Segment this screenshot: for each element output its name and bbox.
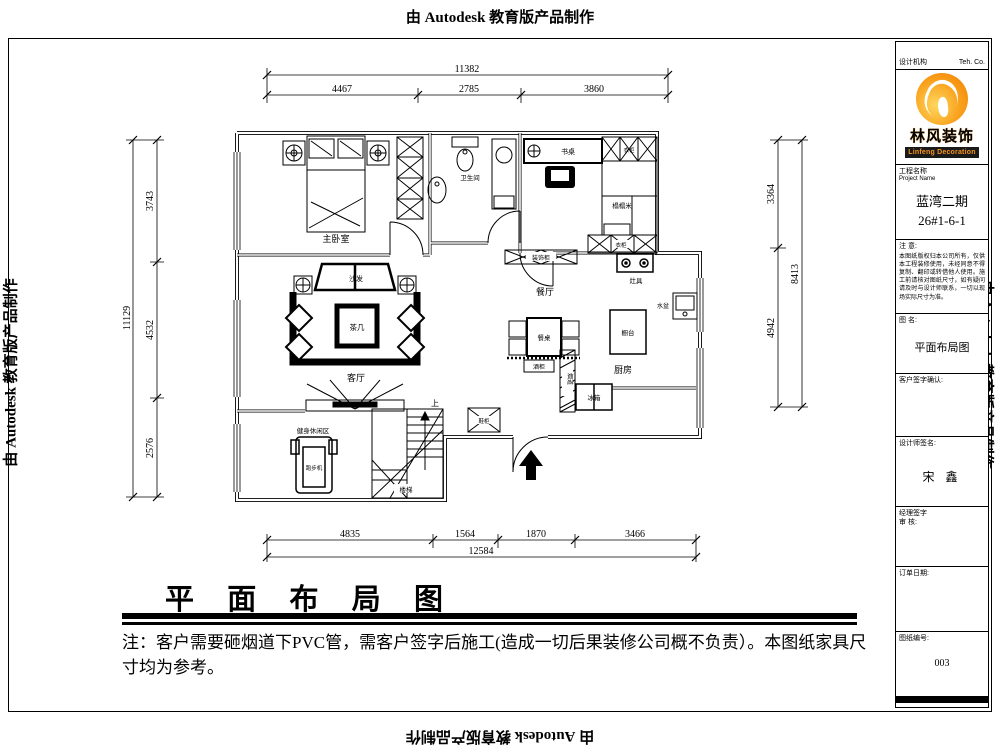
customer-sign-section: 客户签字确认:: [896, 373, 988, 436]
dim-left-seg-2: 2576: [145, 438, 156, 458]
toilet: [452, 137, 478, 171]
dim-left-seg-0: 3743: [145, 191, 156, 211]
dim-top-seg-2: 3860: [584, 84, 604, 95]
dim-bottom-seg-1: 1564: [455, 529, 475, 540]
dimension-lines: [126, 68, 808, 562]
label-tatami: 榻榻米: [612, 201, 632, 210]
dim-top-total: 11382: [455, 64, 480, 75]
order-date-section: 订单日期:: [896, 566, 988, 631]
label-stove: 灶具: [630, 276, 644, 285]
project-name-line2: 26#1-6-1: [899, 212, 985, 231]
label-up: 上: [431, 399, 439, 408]
label-basin: 水盆: [657, 302, 669, 310]
title-block-header: 设计机构 Teh. Co.: [896, 42, 988, 69]
project-section: 工程名称 Project Name 蓝湾二期 26#1-6-1: [896, 164, 988, 239]
dim-bottom-seg-0: 4835: [340, 529, 360, 540]
label-tea-table: 茶几: [350, 322, 365, 332]
sheet-no-section: 图纸编号: 003: [896, 631, 988, 696]
label-flue: 烟道: [566, 373, 574, 385]
manager-sign-section: 经理签字 审 核:: [896, 506, 988, 566]
label-wine-cabinet: 酒柜: [533, 363, 545, 371]
design-org-label: 设计机构: [899, 58, 927, 67]
drawing-name-section: 图 名: 平面布局图: [896, 313, 988, 373]
title-block-bottom-bar: [896, 696, 988, 703]
dim-left-seg-1: 4532: [145, 320, 156, 340]
dim-left-total: 11129: [122, 306, 133, 330]
sheet-no-label: 图纸编号:: [899, 634, 985, 643]
dim-bottom-total: 12584: [469, 546, 494, 557]
designer-sign-section: 设计师签名: 宋 鑫: [896, 436, 988, 506]
project-label-cn: 工程名称: [899, 167, 985, 176]
customer-sign-label: 客户签字确认:: [899, 376, 985, 385]
dim-right-seg-0: 3364: [766, 184, 777, 204]
label-dining-table: 餐桌: [538, 333, 552, 342]
computer-monitor: [545, 166, 575, 188]
staircase: [372, 409, 443, 498]
dim-bottom-seg-2: 1870: [526, 529, 546, 540]
desk-lamp: [528, 145, 540, 157]
tatami-platform: [602, 161, 657, 235]
dim-right-total: 8413: [790, 264, 801, 284]
label-master-bedroom: 主卧室: [322, 233, 349, 245]
label-side-cabinet: 装饰柜: [532, 254, 550, 262]
dim-top-seg-0: 4467: [332, 84, 352, 95]
designer-name: 宋 鑫: [899, 470, 985, 486]
notice-section: 注 意: 本图纸版权归本公司所有，仅供本工程装修使用，未经同意不得复制、翻印或转…: [896, 239, 988, 313]
project-name-line1: 蓝湾二期: [899, 193, 985, 212]
construction-note: 注：客户需要砸烟道下PVC管，需客户签字后施工(造成一切后果装修公司概不负责）。…: [122, 631, 870, 680]
manager-sign-line2: 审 核:: [899, 518, 985, 527]
label-wardrobe-top: 衣柜: [623, 146, 635, 154]
project-label-en: Project Name: [899, 176, 985, 184]
order-date-label: 订单日期:: [899, 569, 985, 578]
label-counter: 橱台: [622, 328, 635, 337]
label-bathroom: 卫生间: [460, 173, 480, 182]
label-desk: 书桌: [561, 147, 575, 156]
label-shoe-cabinet: 鞋柜: [478, 417, 490, 425]
title-block: 设计机构 Teh. Co. 林风装饰 Linfeng Decoration 工程…: [895, 41, 989, 708]
kitchen-sink: [673, 293, 697, 319]
label-fitness: 健身休闲区: [297, 426, 330, 435]
label-stairs: 楼梯: [400, 485, 414, 494]
treadmill: [291, 437, 337, 493]
designer-sign-label: 设计师签名:: [899, 439, 985, 448]
label-fridge: 冰箱: [588, 393, 602, 402]
bedroom-wardrobe: [397, 137, 423, 219]
dim-bottom-seg-3: 3466: [625, 529, 645, 540]
label-living-room: 客厅: [347, 372, 365, 384]
washing-machine: [492, 139, 516, 209]
label-dining-room: 餐厅: [536, 286, 554, 298]
drawing-name-value: 平面布局图: [899, 341, 985, 355]
nightstands: [283, 141, 389, 165]
dim-right-seg-1: 4942: [766, 318, 777, 338]
label-kitchen: 厨房: [614, 364, 632, 376]
title-rule-thin: [122, 622, 857, 625]
notice-body: 本图纸版权归本公司所有，仅供本工程装修使用，未经同意不得复制、翻印或转借他人使用…: [899, 253, 985, 302]
drawing-title: 平 面 布 局 图: [165, 576, 456, 618]
cad-plot-page: 由 Autodesk 教育版产品制作 由 Autodesk 教育版产品制作 由 …: [0, 0, 1000, 750]
company-name-cn: 林风装饰: [910, 127, 974, 147]
bed: [307, 136, 365, 232]
company-logo-icon: [916, 73, 968, 125]
manager-sign-line1: 经理签字: [899, 509, 985, 518]
title-rule-thick: [122, 613, 857, 619]
notice-heading: 注 意:: [899, 242, 985, 251]
drawing-name-label: 图 名:: [899, 316, 985, 325]
entry-arrow: [519, 450, 543, 480]
dim-top-seg-1: 2785: [459, 84, 479, 95]
label-treadmill: 跑步机: [306, 464, 323, 472]
company-name-en: Linfeng Decoration: [905, 147, 978, 158]
tv-cabinet: [306, 380, 404, 411]
stove: [617, 254, 653, 272]
label-sofa: 沙发: [349, 274, 363, 283]
design-org-right: Teh. Co.: [959, 58, 985, 67]
label-wardrobe-bottom: 衣柜: [615, 241, 627, 249]
logo-section: 林风装饰 Linfeng Decoration: [896, 69, 988, 164]
sheet-no-value: 003: [899, 657, 985, 670]
